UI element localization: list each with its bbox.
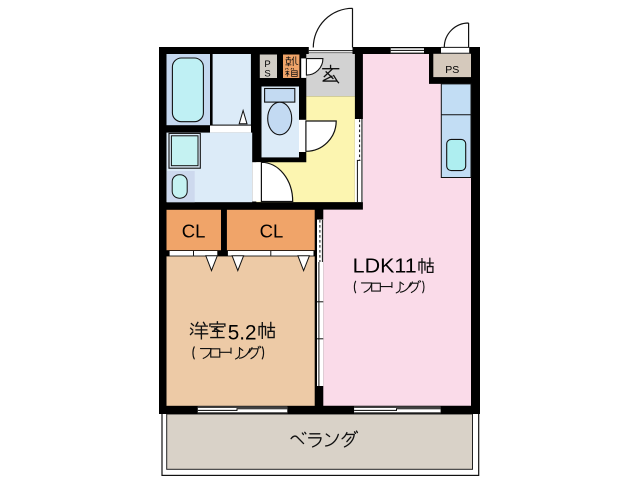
svg-text:CL: CL xyxy=(182,221,206,242)
svg-text:S: S xyxy=(264,69,270,80)
svg-text:CL: CL xyxy=(260,221,284,242)
svg-text:5.2: 5.2 xyxy=(228,322,257,345)
svg-text:LDK11: LDK11 xyxy=(353,256,417,278)
svg-text:PS: PS xyxy=(445,64,459,76)
